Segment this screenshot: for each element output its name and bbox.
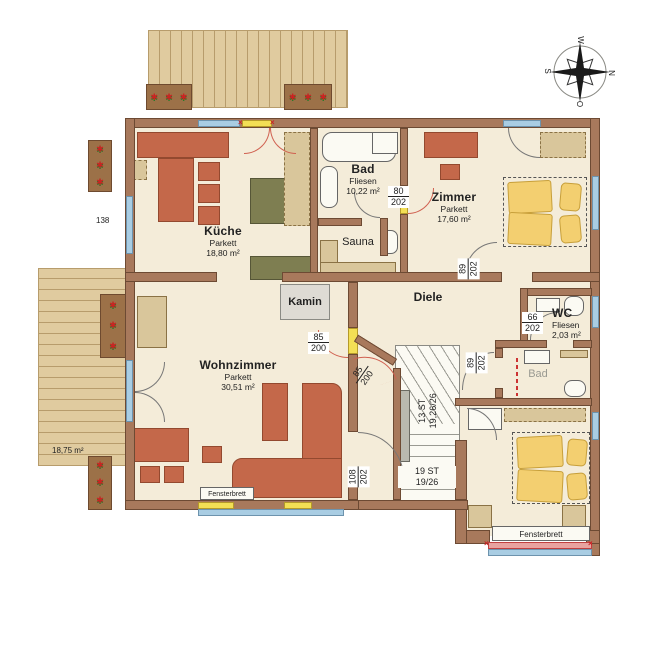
coffee-table [133,428,189,462]
bath-shelf [560,350,588,358]
wall [310,128,318,280]
window-mark-icon [588,540,593,548]
wall [532,272,600,282]
door-dim-wohnzimmer: 85 200 [308,332,329,354]
chair [140,466,160,483]
floor-plan: Kamin Fensterbrett Fensterbrett [0,0,660,660]
window-board-label: Fensterbrett [519,530,562,539]
wardrobe [540,132,586,158]
compass-rose: W N O S [542,34,618,110]
window-mark-icon [484,540,489,548]
toilet [564,380,586,397]
bed-pillow [559,182,582,212]
flower-icon [320,93,328,102]
flower-icon [289,93,297,102]
bed-duvet [507,180,553,214]
wall [573,340,592,348]
window-board-label: Fensterbrett [208,491,246,498]
bed-pillow [566,438,588,467]
chair [164,466,184,483]
kitchen-cabinet [133,160,147,180]
window-sill [284,502,312,509]
room-label-sauna: Sauna [330,232,386,250]
wall [455,398,592,406]
nightstand [468,505,492,528]
wall [125,272,217,282]
door-dim-wc: 66 202 [522,312,543,334]
window-width-label: 138 [96,216,109,225]
window [592,412,599,440]
wall [520,288,592,296]
window [488,549,592,556]
wall [400,214,408,280]
room-label-zimmer: Zimmer Parkett 17,60 m² [412,190,496,224]
stair-label-lower: 19 ST 19/26 [398,466,456,488]
flower-icon [96,461,104,470]
room-label-wc: WC Fliesen 2,03 m² [552,306,596,340]
nightstand [562,505,586,528]
window-mark-icon [238,119,243,127]
room-label-diele: Diele [398,288,458,306]
window-board: Fensterbrett [492,526,590,541]
flower-box [284,84,332,110]
wall [358,500,468,510]
flower-icon [109,321,117,330]
bed-pillow [566,472,588,501]
fireplace-label: Kamin [288,296,322,308]
bed-pillow [559,214,582,244]
wall [495,340,547,348]
wall [400,128,408,186]
flower-icon [96,478,104,487]
door-dim-bad: 80 202 [388,186,409,208]
room-label-bad-klein: Bad [518,364,558,382]
flower-icon [165,93,173,102]
window-sill [198,502,234,509]
chair [198,206,220,225]
stair-railing [400,390,410,462]
wall [125,118,135,510]
window-board: Fensterbrett [200,487,254,500]
bed-duvet [516,469,564,503]
window [126,360,133,422]
bed-duvet [516,435,564,469]
compass-n: N [607,70,616,76]
flower-box [88,140,112,192]
flower-icon [109,342,117,351]
fireplace: Kamin [280,284,330,320]
compass-s: S [543,68,552,73]
chair [202,446,222,463]
wall [455,440,467,500]
window [198,120,240,127]
flower-icon [96,178,104,187]
flower-icon [96,161,104,170]
chair [440,164,460,180]
wall [495,388,503,398]
wall [348,282,358,328]
bath-sink [524,350,550,364]
chair [198,162,220,181]
flower-icon [180,93,188,102]
desk [424,132,478,158]
flower-icon [304,93,312,102]
chair [198,184,220,203]
flower-icon [96,496,104,505]
flower-box [88,456,112,510]
stair-label-upper: 13 ST 19,26/26 [417,383,439,439]
window [126,196,133,254]
flower-icon [96,145,104,154]
flower-icon [109,301,117,310]
door-dim-zimmer: 89 202 [458,258,480,279]
room-label-kueche: Küche Parkett 18,80 m² [168,224,278,258]
compass-w: W [576,36,585,44]
flower-box [146,84,192,110]
flower-box [100,294,126,358]
window [592,176,599,230]
dining-table [158,158,194,222]
door-dim-flur: 108 202 [348,466,370,487]
flower-icon [151,93,159,102]
door-dim-bad-klein: 89 202 [466,352,488,373]
compass-o: O [575,101,584,107]
window-mark-icon [270,119,275,127]
window-sill [242,120,272,127]
sideboard [137,296,167,348]
bed-duvet [507,212,553,246]
wall [318,218,362,226]
kitchen-counter [137,132,229,158]
terrace-area-label: 18,75 m² [52,446,84,455]
window [198,509,344,516]
bath-sink [372,132,398,154]
window-sill [488,542,592,549]
wardrobe [504,408,586,422]
room-label-wohnzimmer: Wohnzimmer Parkett 30,51 m² [168,358,308,392]
window [503,120,541,127]
wall [495,348,503,358]
